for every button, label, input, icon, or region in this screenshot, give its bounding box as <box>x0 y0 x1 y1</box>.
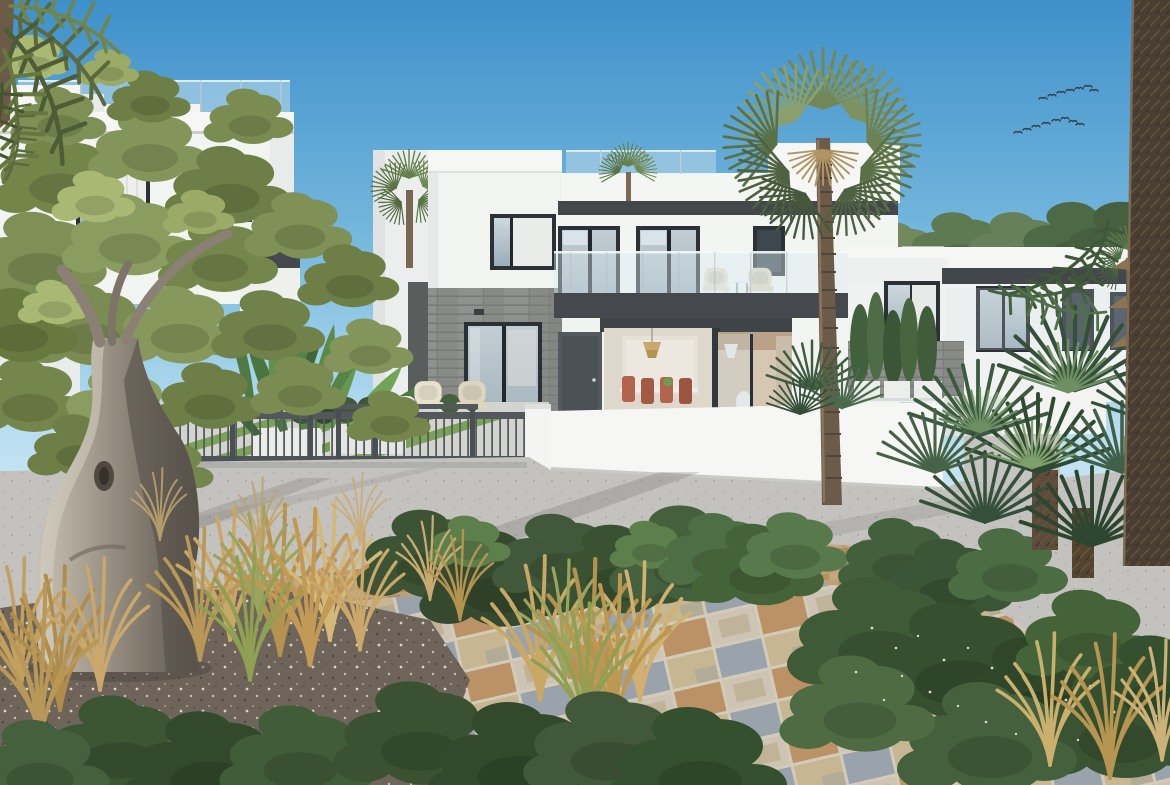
wall-lamp <box>474 309 484 315</box>
roof-parapet-left <box>562 173 770 203</box>
stone-clad-wing <box>428 150 562 434</box>
render-canvas: Architectural render: modern white two-s… <box>0 0 1170 785</box>
villa-exterior-photo: Architectural render: modern white two-s… <box>0 0 1170 785</box>
roof-fascia <box>558 201 898 215</box>
kitchen-interior <box>718 332 792 418</box>
table-plant <box>664 378 673 387</box>
